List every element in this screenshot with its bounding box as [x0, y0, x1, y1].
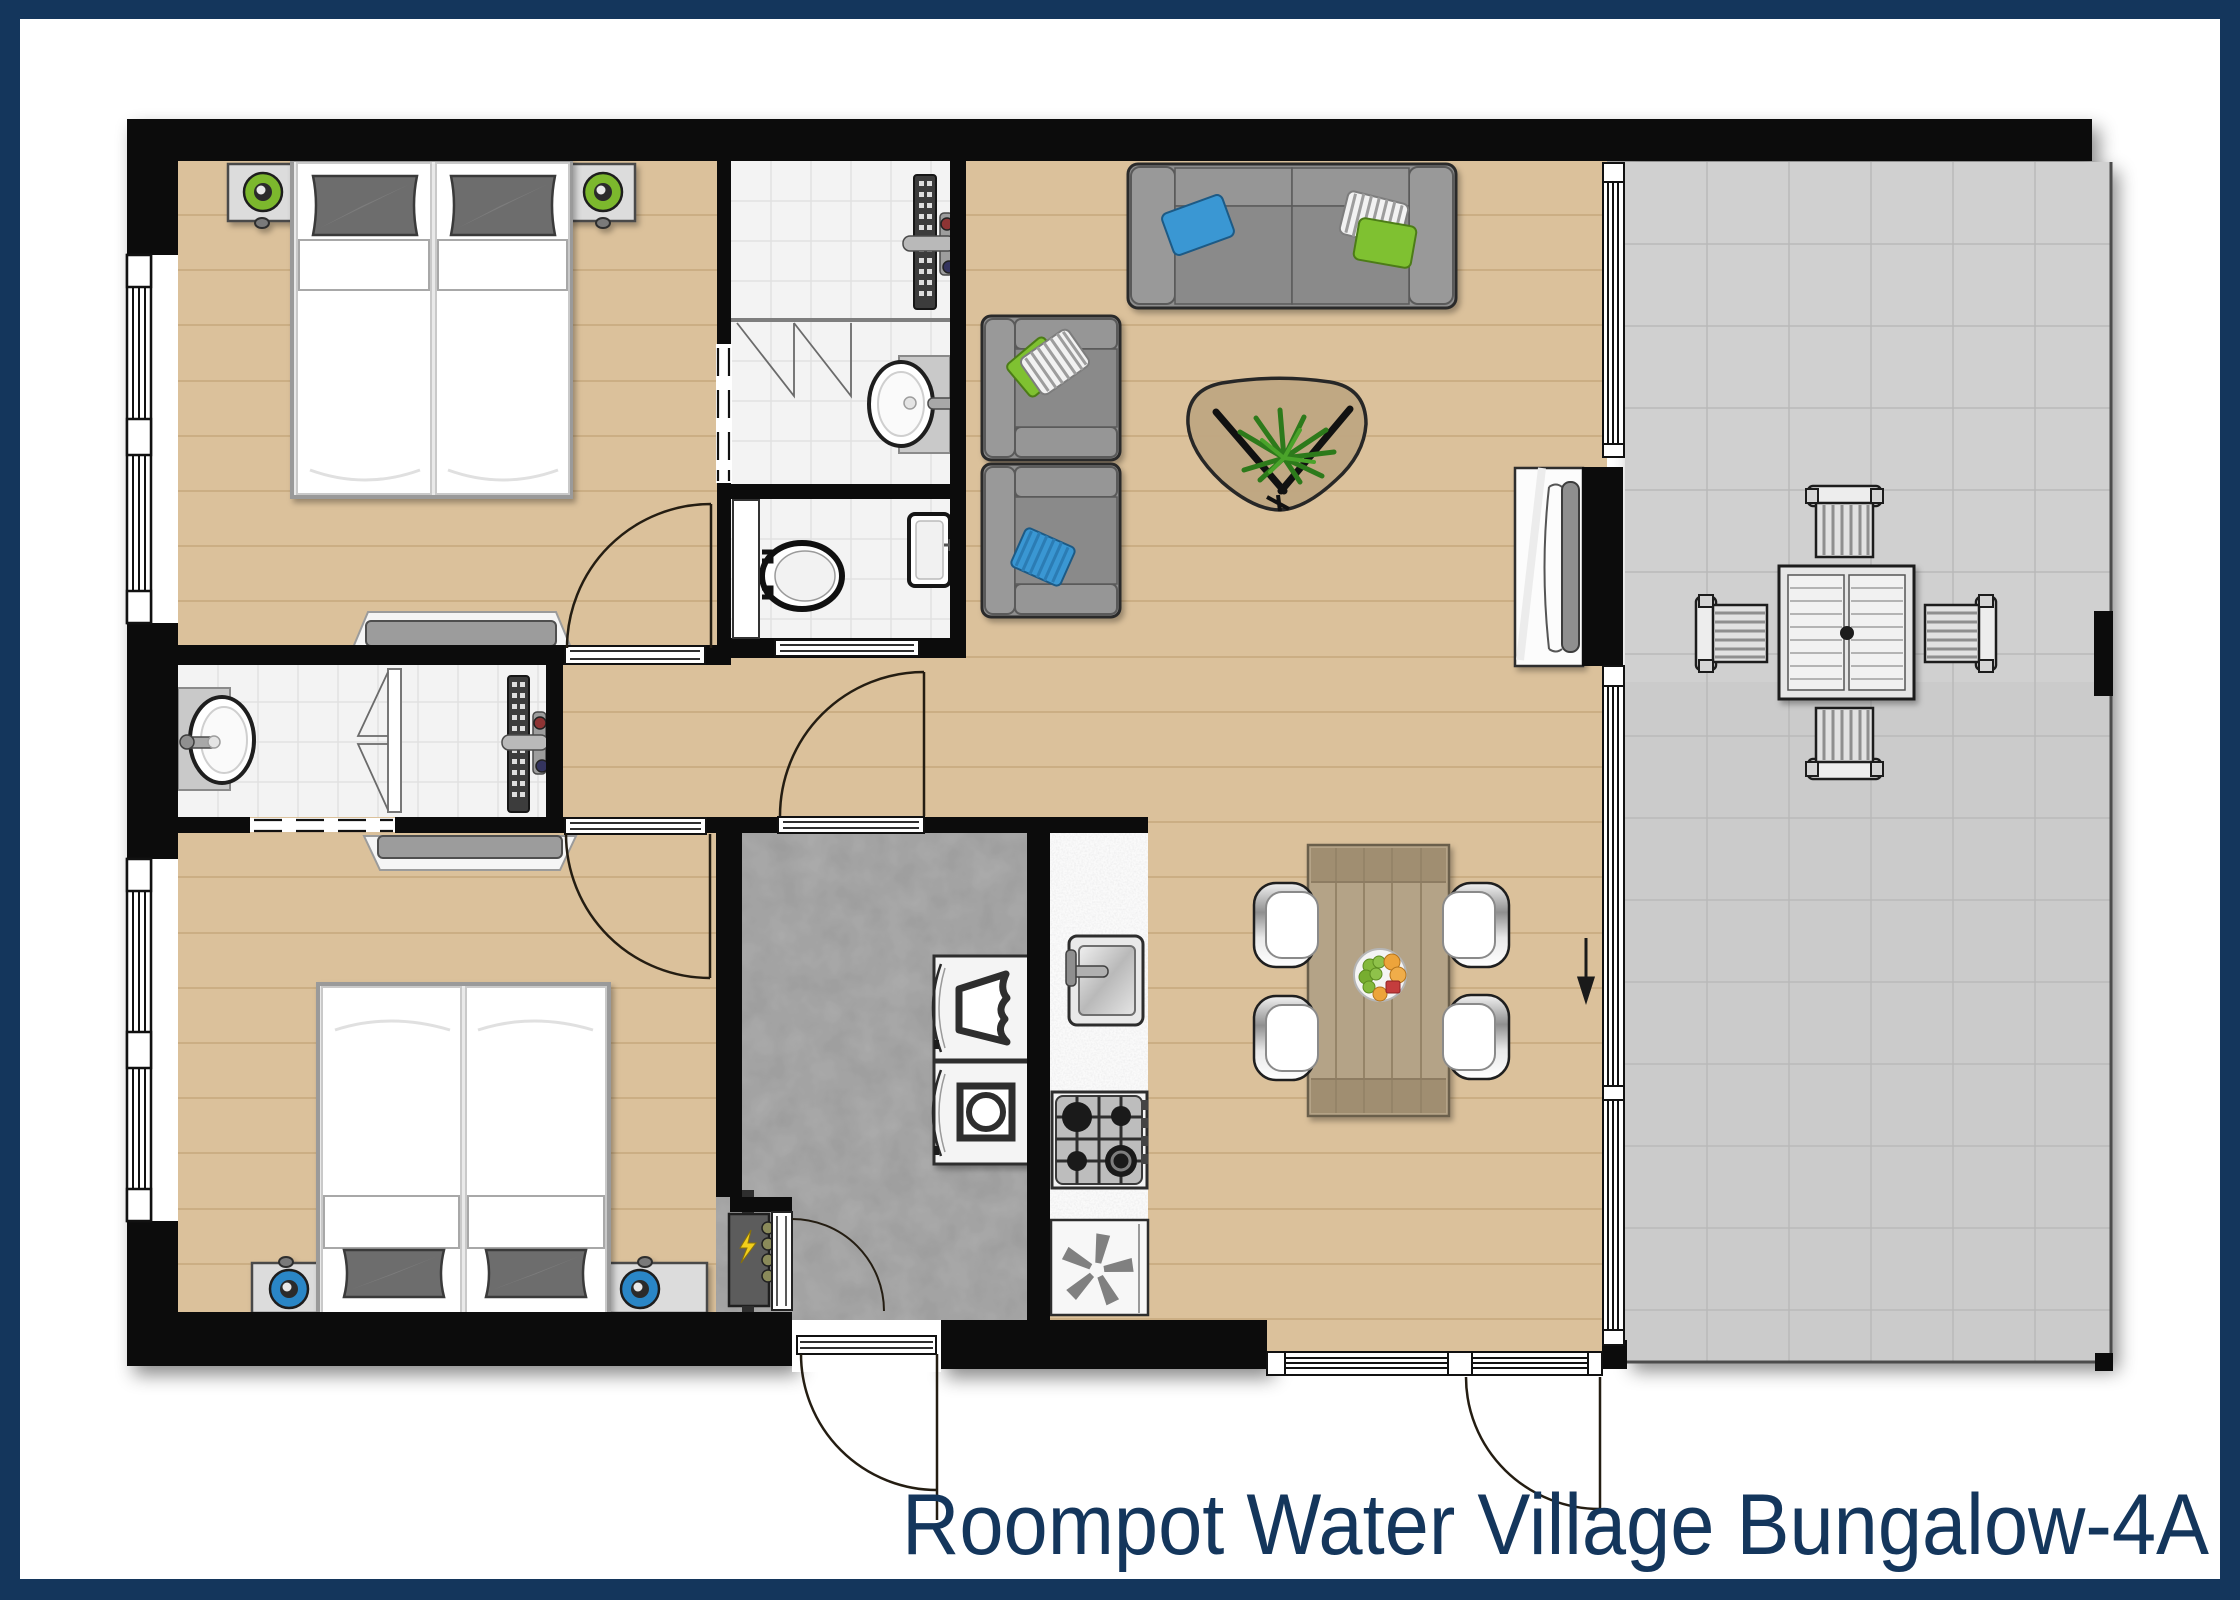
svg-text:Roompot Water Village Bungalow: Roompot Water Village Bungalow-4A: [902, 1477, 2210, 1573]
